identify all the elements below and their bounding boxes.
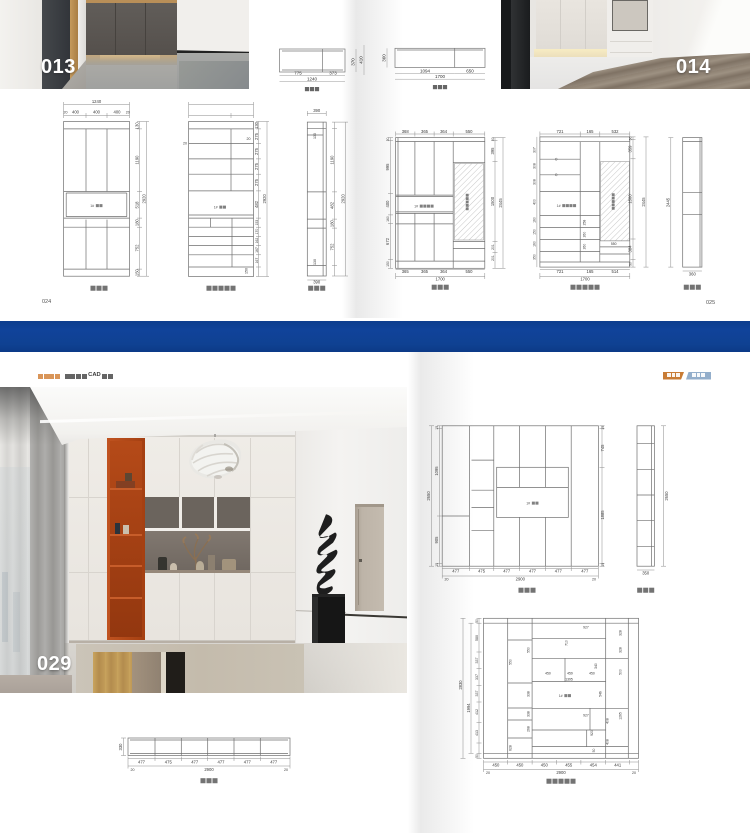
svg-text:20: 20 — [131, 768, 135, 772]
svg-text:2900: 2900 — [204, 767, 214, 772]
svg-text:1#: 1# — [414, 205, 418, 209]
svg-text:20: 20 — [126, 111, 130, 115]
svg-text:180: 180 — [135, 218, 140, 226]
svg-text:441: 441 — [614, 763, 622, 768]
svg-text:1#: 1# — [214, 206, 218, 210]
svg-text:518: 518 — [135, 201, 140, 209]
svg-text:1700: 1700 — [436, 277, 446, 282]
svg-text:482: 482 — [254, 200, 259, 208]
svg-text:307: 307 — [533, 147, 537, 153]
svg-text:477: 477 — [452, 568, 460, 573]
svg-text:477: 477 — [138, 760, 146, 765]
svg-text:340: 340 — [594, 663, 598, 669]
svg-text:50: 50 — [491, 137, 495, 141]
svg-text:1190: 1190 — [329, 155, 334, 165]
svg-text:165: 165 — [587, 269, 595, 274]
svg-text:153: 153 — [255, 220, 259, 226]
svg-text:275: 275 — [254, 132, 259, 140]
svg-text:384: 384 — [628, 245, 633, 253]
svg-text:1885: 1885 — [600, 510, 605, 520]
svg-text:50: 50 — [475, 619, 479, 623]
svg-text:905: 905 — [434, 536, 439, 544]
svg-text:350: 350 — [642, 571, 650, 576]
svg-text:920: 920 — [590, 730, 594, 736]
svg-text:2445: 2445 — [498, 198, 503, 208]
svg-text:024: 024 — [42, 299, 51, 305]
svg-text:2900: 2900 — [516, 576, 526, 581]
svg-text:477: 477 — [270, 760, 278, 765]
svg-text:546: 546 — [598, 691, 602, 697]
svg-text:364: 364 — [440, 129, 448, 134]
svg-text:721: 721 — [557, 129, 565, 134]
svg-text:2830: 2830 — [458, 680, 463, 690]
svg-text:201: 201 — [491, 244, 495, 250]
svg-text:721: 721 — [557, 269, 565, 274]
svg-text:150: 150 — [386, 261, 390, 267]
svg-text:260: 260 — [583, 232, 587, 238]
svg-text:410: 410 — [359, 56, 364, 64]
svg-text:482: 482 — [329, 201, 334, 209]
svg-text:130: 130 — [254, 121, 259, 129]
svg-text:400: 400 — [72, 110, 80, 115]
svg-text:459: 459 — [567, 672, 573, 676]
svg-text:201: 201 — [491, 255, 495, 261]
svg-text:337: 337 — [475, 658, 479, 664]
svg-text:025: 025 — [706, 300, 715, 306]
svg-text:475: 475 — [165, 760, 173, 765]
svg-text:550: 550 — [526, 647, 530, 653]
svg-text:395: 395 — [490, 147, 495, 155]
svg-text:400: 400 — [93, 110, 101, 115]
svg-text:752: 752 — [329, 243, 334, 251]
svg-text:927: 927 — [583, 714, 589, 718]
svg-text:995: 995 — [385, 163, 390, 171]
svg-text:412: 412 — [475, 709, 479, 715]
svg-text:15: 15 — [435, 563, 439, 567]
svg-text:50: 50 — [475, 754, 479, 758]
svg-text:150: 150 — [533, 229, 537, 235]
svg-text:337: 337 — [475, 674, 479, 680]
svg-text:275: 275 — [254, 147, 259, 155]
svg-text:50: 50 — [386, 137, 390, 141]
svg-text:50: 50 — [592, 749, 596, 753]
svg-text:360: 360 — [689, 272, 697, 277]
svg-text:160: 160 — [386, 216, 390, 222]
svg-text:455: 455 — [565, 763, 573, 768]
svg-text:365: 365 — [421, 269, 429, 274]
svg-text:475: 475 — [478, 568, 486, 573]
svg-text:1265: 1265 — [618, 712, 622, 720]
svg-text:330: 330 — [118, 743, 123, 751]
svg-text:672: 672 — [385, 237, 390, 245]
svg-text:450: 450 — [516, 763, 524, 768]
svg-text:2920: 2920 — [341, 193, 346, 203]
svg-text:350: 350 — [533, 254, 537, 260]
svg-text:1#: 1# — [557, 204, 561, 208]
svg-text:150: 150 — [245, 268, 249, 274]
svg-text:337: 337 — [475, 691, 479, 697]
svg-text:338: 338 — [526, 691, 530, 697]
svg-text:308: 308 — [533, 163, 537, 169]
svg-text:1700: 1700 — [435, 74, 446, 79]
svg-text:450: 450 — [545, 672, 551, 676]
svg-text:328: 328 — [618, 630, 622, 636]
svg-text:477: 477 — [244, 760, 252, 765]
svg-text:130: 130 — [313, 259, 317, 265]
svg-text:2650: 2650 — [664, 491, 669, 501]
svg-text:650: 650 — [466, 68, 474, 73]
svg-text:160: 160 — [533, 217, 537, 223]
svg-text:50: 50 — [629, 137, 633, 141]
svg-text:260: 260 — [583, 244, 587, 250]
svg-text:162: 162 — [255, 238, 259, 244]
svg-text:338: 338 — [526, 711, 530, 717]
svg-text:1500: 1500 — [490, 196, 495, 206]
svg-text:1095: 1095 — [434, 466, 439, 476]
svg-text:477: 477 — [503, 568, 511, 573]
svg-text:477: 477 — [555, 568, 563, 573]
svg-text:20: 20 — [486, 771, 490, 775]
svg-text:130: 130 — [313, 133, 317, 139]
svg-text:370: 370 — [351, 58, 356, 66]
svg-text:752: 752 — [135, 244, 140, 252]
svg-text:450: 450 — [589, 672, 595, 676]
svg-text:268: 268 — [526, 726, 530, 732]
svg-text:477: 477 — [218, 760, 226, 765]
svg-text:20: 20 — [592, 577, 596, 581]
svg-text:1#: 1# — [526, 502, 530, 506]
svg-text:160: 160 — [533, 241, 537, 247]
svg-text:373: 373 — [329, 71, 337, 76]
svg-text:775: 775 — [294, 71, 302, 76]
svg-text:275: 275 — [254, 178, 259, 186]
svg-text:258: 258 — [583, 220, 587, 226]
svg-text:2920: 2920 — [142, 193, 147, 203]
svg-text:745: 745 — [600, 444, 605, 452]
svg-text:150: 150 — [135, 268, 140, 276]
svg-text:167: 167 — [255, 247, 259, 253]
svg-text:365: 365 — [402, 269, 410, 274]
svg-text:2920: 2920 — [262, 193, 267, 203]
svg-text:368: 368 — [402, 129, 410, 134]
svg-text:413: 413 — [475, 730, 479, 736]
svg-text:130: 130 — [135, 122, 140, 130]
svg-text:15: 15 — [435, 426, 439, 430]
svg-text:360: 360 — [382, 54, 387, 62]
svg-text:477: 477 — [191, 760, 199, 765]
svg-text:514: 514 — [612, 269, 620, 274]
svg-text:550: 550 — [466, 269, 474, 274]
svg-text:165: 165 — [587, 129, 595, 134]
svg-text:15: 15 — [601, 563, 605, 567]
svg-text:390: 390 — [313, 280, 321, 285]
svg-text:20: 20 — [183, 142, 187, 146]
svg-text:532: 532 — [612, 129, 620, 134]
svg-text:308: 308 — [533, 179, 537, 185]
svg-text:580: 580 — [475, 635, 479, 641]
svg-text:180: 180 — [329, 219, 334, 227]
svg-text:408: 408 — [606, 739, 610, 745]
svg-text:710: 710 — [564, 640, 568, 646]
svg-text:167: 167 — [255, 258, 259, 264]
svg-text:1190: 1190 — [135, 155, 140, 165]
svg-text:400: 400 — [385, 200, 390, 208]
svg-text:50: 50 — [629, 262, 633, 266]
svg-text:477: 477 — [581, 568, 589, 573]
svg-text:408: 408 — [606, 718, 610, 724]
svg-text:2445: 2445 — [641, 197, 646, 207]
svg-text:400: 400 — [533, 199, 537, 205]
svg-text:20: 20 — [247, 137, 251, 141]
svg-text:454: 454 — [590, 763, 598, 768]
svg-text:1#: 1# — [90, 204, 94, 208]
svg-text:365: 365 — [421, 129, 429, 134]
svg-text:450: 450 — [492, 763, 500, 768]
svg-text:359: 359 — [628, 145, 633, 153]
svg-text:1094: 1094 — [420, 68, 431, 73]
svg-text:20: 20 — [632, 771, 636, 775]
svg-text:2900: 2900 — [556, 770, 566, 775]
svg-text:15: 15 — [601, 426, 605, 430]
svg-text:20: 20 — [445, 577, 449, 581]
svg-text:1700: 1700 — [580, 277, 590, 282]
svg-text:1#: 1# — [559, 694, 563, 698]
svg-text:2445: 2445 — [665, 197, 670, 207]
svg-text:170: 170 — [255, 229, 259, 235]
svg-text:400: 400 — [114, 110, 122, 115]
svg-text:500: 500 — [618, 669, 622, 675]
svg-text:328: 328 — [618, 647, 622, 653]
svg-text:550: 550 — [611, 242, 617, 246]
svg-text:20: 20 — [284, 768, 288, 772]
svg-text:628: 628 — [509, 745, 513, 751]
svg-text:1240: 1240 — [92, 99, 102, 104]
svg-text:450: 450 — [541, 763, 549, 768]
svg-text:550: 550 — [509, 659, 513, 665]
svg-text:2650: 2650 — [426, 491, 431, 501]
svg-text:364: 364 — [440, 269, 448, 274]
svg-text:20: 20 — [64, 111, 68, 115]
svg-text:1395: 1395 — [565, 678, 573, 682]
svg-text:1500: 1500 — [628, 194, 633, 204]
svg-text:477: 477 — [529, 568, 537, 573]
svg-text:927: 927 — [583, 626, 589, 630]
svg-text:390: 390 — [313, 108, 321, 113]
svg-text:1240: 1240 — [307, 77, 318, 82]
svg-text:1994: 1994 — [466, 703, 471, 713]
svg-text:550: 550 — [466, 129, 474, 134]
svg-text:275: 275 — [254, 162, 259, 170]
